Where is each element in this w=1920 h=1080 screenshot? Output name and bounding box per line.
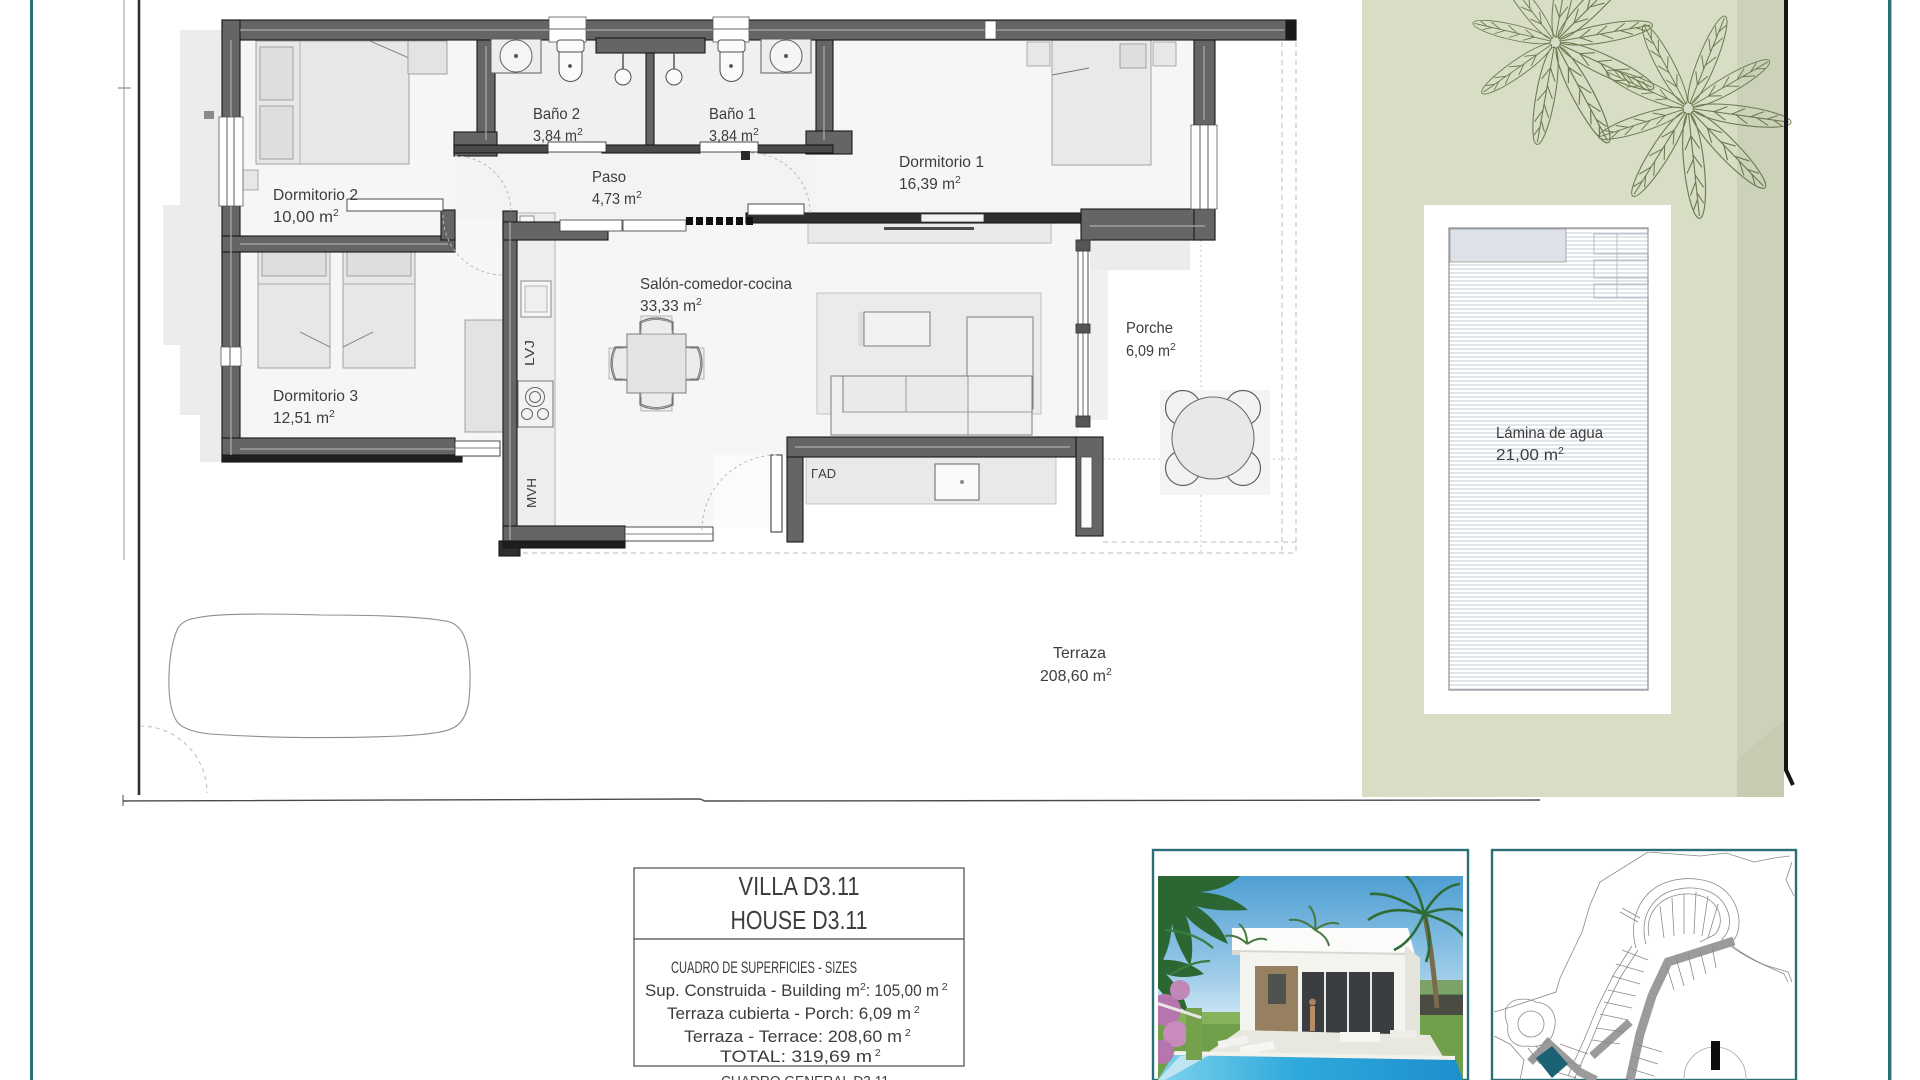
svg-text:12,51 m2: 12,51 m2 <box>273 408 335 427</box>
svg-text:Porche: Porche <box>1126 320 1173 337</box>
svg-text:16,39 m2: 16,39 m2 <box>899 174 961 193</box>
svg-text:CUADRO DE SUPERFICIES - SIZES: CUADRO DE SUPERFICIES - SIZES <box>671 959 857 977</box>
svg-text:Dormitorio 2: Dormitorio 2 <box>273 187 358 204</box>
svg-text:208,60 m2: 208,60 m2 <box>1040 666 1112 685</box>
svg-text:MVH: MVH <box>524 478 539 508</box>
svg-text:3,84 m2: 3,84 m2 <box>709 126 759 145</box>
svg-text:Terraza - Terrace: 208,60 m 2: Terraza - Terrace: 208,60 m 2 <box>684 1027 911 1046</box>
svg-text:Dormitorio 1: Dormitorio 1 <box>899 154 984 171</box>
svg-text:CUADRO GENERAL D3.11: CUADRO GENERAL D3.11 <box>721 1073 889 1080</box>
svg-text:10,00 m2: 10,00 m2 <box>273 207 339 226</box>
svg-text:VILLA D3.11: VILLA D3.11 <box>739 871 860 901</box>
svg-text:6,09 m2: 6,09 m2 <box>1126 341 1176 360</box>
svg-text:Sup. Construida - Building m2: Sup. Construida - Building m2: 105,00 m … <box>645 981 948 1000</box>
svg-text:HOUSE D3.11: HOUSE D3.11 <box>731 905 868 935</box>
svg-text:Terraza cubierta - Porch: 6,0: Terraza cubierta - Porch: 6,09 m 2 <box>667 1004 920 1023</box>
svg-text:Dormitorio 3: Dormitorio 3 <box>273 388 358 405</box>
svg-text:21,00 m2: 21,00 m2 <box>1496 445 1564 464</box>
svg-text:ΓAD: ΓAD <box>811 467 836 481</box>
svg-text:33,33 m2: 33,33 m2 <box>640 296 702 315</box>
svg-text:Baño 1: Baño 1 <box>709 106 756 123</box>
svg-text:Salón-comedor-cocina: Salón-comedor-cocina <box>640 276 792 293</box>
svg-text:Paso: Paso <box>592 169 626 186</box>
svg-text:Lámina de agua: Lámina de agua <box>1496 425 1603 442</box>
svg-text:3,84 m2: 3,84 m2 <box>533 126 583 145</box>
svg-text:LVJ: LVJ <box>522 340 537 366</box>
svg-text:Baño 2: Baño 2 <box>533 106 580 123</box>
svg-text:Terraza: Terraza <box>1053 645 1106 662</box>
svg-text:TOTAL: 319,69 m 2: TOTAL: 319,69 m 2 <box>720 1047 881 1066</box>
svg-text:4,73 m2: 4,73 m2 <box>592 189 642 208</box>
